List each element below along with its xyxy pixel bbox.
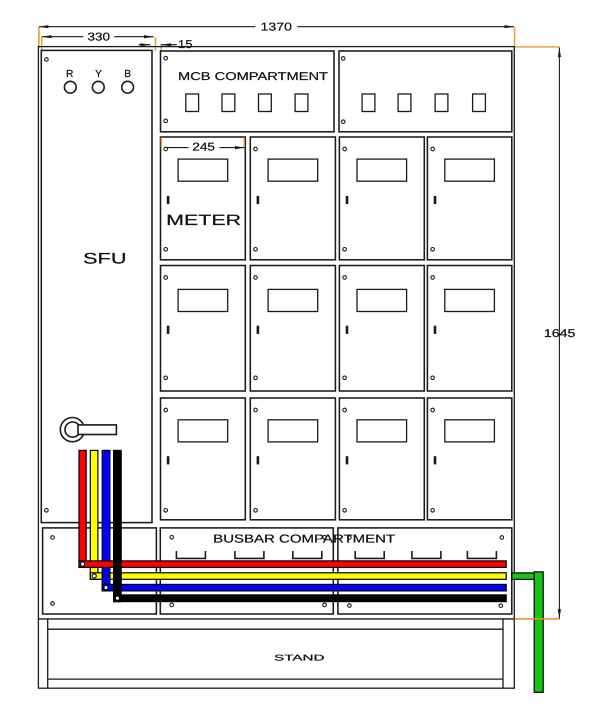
svg-text:15: 15 (178, 39, 193, 51)
svg-text:330: 330 (88, 32, 111, 44)
svg-text:B: B (124, 69, 131, 80)
svg-text:MCB COMPARTMENT: MCB COMPARTMENT (178, 71, 328, 83)
svg-text:R: R (66, 69, 73, 80)
svg-text:BUSBAR COMPARTMENT: BUSBAR COMPARTMENT (213, 533, 395, 545)
svg-text:METER: METER (166, 212, 241, 229)
svg-text:SFU: SFU (83, 251, 127, 268)
svg-text:245: 245 (192, 142, 215, 154)
svg-text:STAND: STAND (274, 653, 325, 663)
svg-text:1370: 1370 (261, 22, 293, 34)
svg-text:1645: 1645 (544, 328, 576, 340)
svg-text:Y: Y (95, 69, 102, 80)
